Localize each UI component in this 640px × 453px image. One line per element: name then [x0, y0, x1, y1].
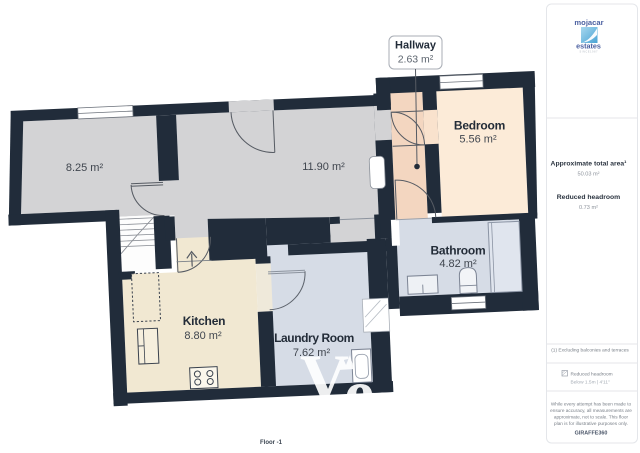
svg-text:8.80 m²: 8.80 m² — [184, 330, 222, 342]
svg-text:Bedroom: Bedroom — [454, 119, 505, 133]
svg-text:plan is for illustrative purpo: plan is for illustrative purposes only. — [554, 421, 628, 426]
svg-text:Reduced headroom: Reduced headroom — [571, 372, 613, 378]
svg-text:Kitchen: Kitchen — [183, 314, 226, 328]
svg-text:estates: estates — [576, 42, 601, 51]
svg-text:Reduced headroom: Reduced headroom — [557, 194, 620, 201]
svg-text:0.73 m²: 0.73 m² — [579, 205, 598, 211]
svg-text:7.62 m²: 7.62 m² — [293, 347, 331, 359]
svg-text:11.90 m²: 11.90 m² — [302, 161, 345, 173]
svg-text:Bathroom: Bathroom — [430, 244, 485, 258]
svg-text:50.03 m²: 50.03 m² — [577, 172, 599, 178]
svg-text:GIRAFFE360: GIRAFFE360 — [575, 431, 608, 437]
svg-text:8.25 m²: 8.25 m² — [66, 162, 104, 174]
svg-text:S I N C E 1 9 8 7: S I N C E 1 9 8 7 — [580, 50, 599, 53]
svg-text:While every attempt has been m: While every attempt has been made to — [551, 402, 632, 407]
svg-text:(1) Excluding balconies and te: (1) Excluding balconies and terraces — [551, 348, 629, 354]
svg-text:2.63 m²: 2.63 m² — [398, 54, 434, 66]
svg-text:4.82 m²: 4.82 m² — [439, 258, 477, 270]
svg-text:Laundry Room: Laundry Room — [274, 331, 354, 345]
svg-text:Hallway: Hallway — [395, 40, 437, 52]
svg-text:Floor -1: Floor -1 — [260, 440, 283, 446]
svg-text:mojacar: mojacar — [574, 18, 603, 27]
svg-text:approximate, not to scale. Thi: approximate, not to scale. This floor — [554, 415, 629, 420]
svg-text:5.56 m²: 5.56 m² — [459, 134, 497, 146]
svg-text:ensure accuracy, all measureme: ensure accuracy, all measurements are — [550, 408, 632, 413]
svg-text:Approximate total area¹: Approximate total area¹ — [551, 161, 628, 168]
svg-text:Below 1.5m | 4'11'': Below 1.5m | 4'11'' — [571, 380, 610, 386]
